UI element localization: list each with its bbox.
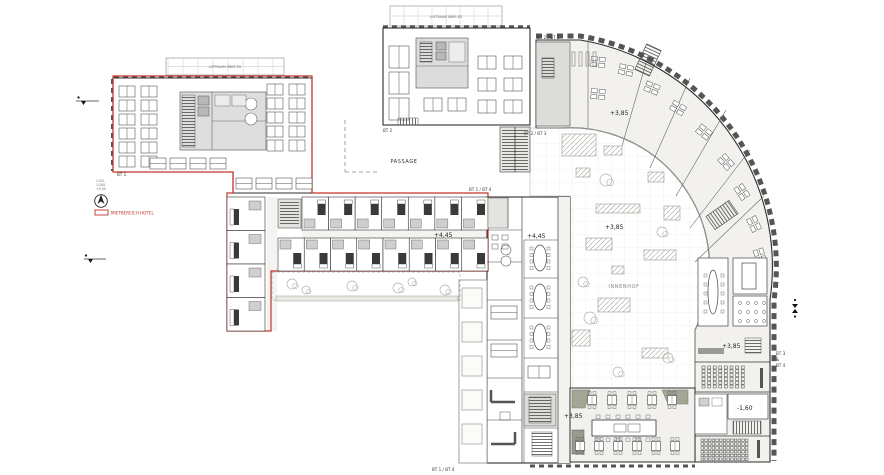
legend-red-swatch <box>95 210 108 215</box>
level-mid-wing: +4,45 <box>527 233 546 240</box>
bt1-label: BT 1 <box>117 172 127 177</box>
bt4-label: BT 4 <box>776 363 786 368</box>
level-hotel-corridor: +4,45 <box>434 232 453 239</box>
level-auditorium: -1,60 <box>737 405 753 412</box>
passage-dashed-boundary <box>345 120 377 172</box>
floor-plan-drawing: LUFTRAUM ÜBER EG LUFTRAUM ÜBER EG BT 1 B… <box>0 0 884 475</box>
ampersand-label: & <box>776 357 780 362</box>
level-arc-upper: +3,85 <box>610 110 629 117</box>
bt2-label: BT 2 <box>383 128 393 133</box>
section-cut-marker <box>792 299 798 318</box>
section-cut-marker <box>76 96 99 105</box>
hotel-terrace <box>272 272 460 301</box>
innenhof-label: INNENHOF <box>608 284 639 290</box>
bt1-bt4-bottom-label: BT 1 / BT 4 <box>432 467 455 472</box>
bt2-bt3-mid-label: BT 2 / BT 3 <box>524 131 547 136</box>
note-line3: +4,45 <box>96 187 106 191</box>
legend-red-label: MIETBEREICH HOTEL <box>111 211 154 216</box>
floor-plan-page: LUFTRAUM ÜBER EG LUFTRAUM ÜBER EG BT 1 B… <box>0 0 884 475</box>
luftraum-left-label: LUFTRAUM ÜBER EG <box>209 64 242 69</box>
north-arrow-icon <box>95 195 108 208</box>
bt1-bt4-top-label: BT 1 / BT 4 <box>469 187 492 192</box>
bt2-bt3-top-label: BT 2 / BT 3 <box>537 35 560 40</box>
section-cut-marker <box>84 254 106 263</box>
level-restaurant: +3,85 <box>564 413 583 420</box>
passage-label: PASSAGE <box>390 159 417 165</box>
level-courtyard: +3,85 <box>605 224 624 231</box>
level-arc-right: +3,85 <box>722 343 741 350</box>
luftraum-top-label: LUFTRAUM ÜBER EG <box>430 14 463 19</box>
bt3-label: BT 3 <box>776 351 786 356</box>
